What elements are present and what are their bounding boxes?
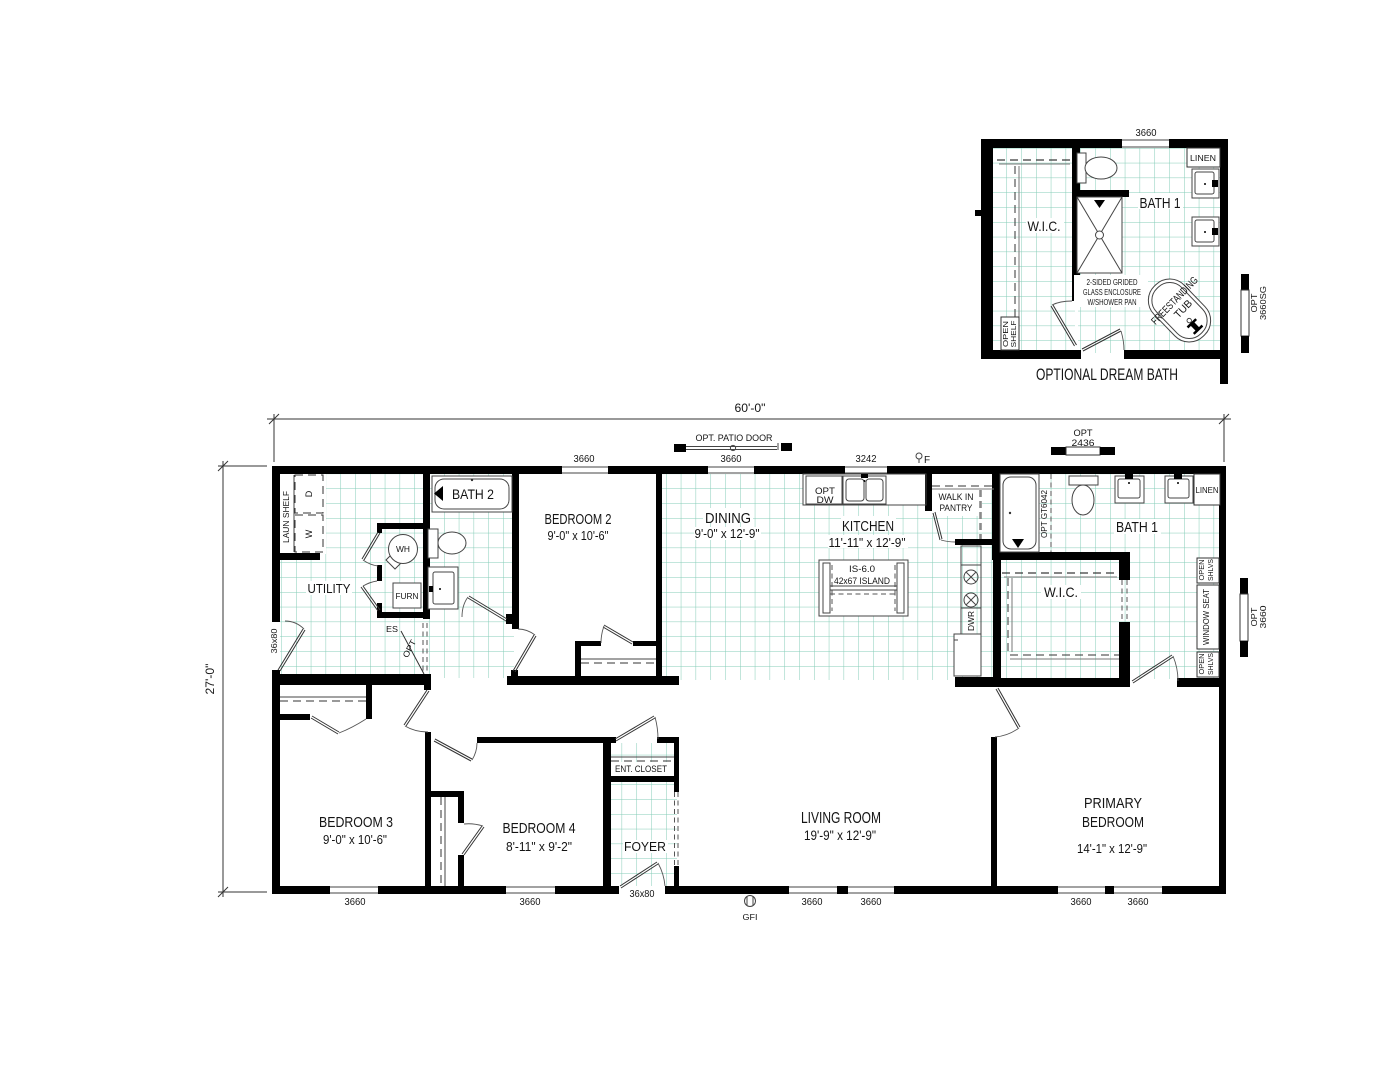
svg-text:3242: 3242 [856, 454, 877, 465]
svg-text:9'-0" x 10'-6": 9'-0" x 10'-6" [323, 832, 387, 847]
svg-text:F: F [924, 455, 930, 466]
svg-text:OPTIONAL DREAM BATH: OPTIONAL DREAM BATH [1036, 365, 1178, 384]
svg-text:OPEN: OPEN [1199, 654, 1206, 675]
svg-text:3660: 3660 [1258, 605, 1268, 628]
svg-text:11'-11" x 12'-9": 11'-11" x 12'-9" [829, 535, 906, 550]
svg-text:36x80: 36x80 [269, 628, 279, 653]
svg-text:IS-6.0: IS-6.0 [849, 564, 875, 575]
svg-text:DINING: DINING [705, 510, 751, 527]
svg-text:19'-9" x 12'-9": 19'-9" x 12'-9" [804, 827, 876, 843]
svg-text:SHLVS: SHLVS [1208, 559, 1215, 581]
svg-text:27'-0": 27'-0" [203, 664, 217, 695]
svg-text:LINEN: LINEN [1190, 153, 1216, 163]
svg-text:BEDROOM 4: BEDROOM 4 [503, 820, 576, 837]
svg-text:3660: 3660 [574, 454, 595, 465]
svg-text:ENT. CLOSET: ENT. CLOSET [615, 764, 667, 774]
svg-text:BATH 1: BATH 1 [1116, 520, 1158, 536]
svg-text:PANTRY: PANTRY [940, 503, 973, 513]
svg-text:LAUN SHELF: LAUN SHELF [281, 491, 291, 543]
svg-text:3660: 3660 [1128, 897, 1149, 908]
svg-text:BEDROOM 2: BEDROOM 2 [545, 511, 612, 528]
svg-text:WINDOW SEAT: WINDOW SEAT [1202, 589, 1211, 645]
svg-text:3660: 3660 [1071, 897, 1092, 908]
svg-text:60'-0": 60'-0" [735, 401, 766, 415]
svg-text:9'-0" x 10'-6": 9'-0" x 10'-6" [548, 528, 609, 543]
svg-text:FOYER: FOYER [624, 839, 666, 854]
svg-text:W.I.C.: W.I.C. [1044, 584, 1078, 600]
svg-text:BATH 2: BATH 2 [452, 487, 494, 502]
svg-text:W.I.C.: W.I.C. [1028, 218, 1061, 234]
svg-text:W/SHOWER PAN: W/SHOWER PAN [1088, 297, 1137, 307]
svg-text:KITCHEN: KITCHEN [842, 518, 894, 535]
svg-text:WH: WH [396, 544, 410, 554]
svg-text:42x67 ISLAND: 42x67 ISLAND [834, 576, 890, 587]
svg-text:D: D [304, 490, 314, 497]
svg-text:3660SG: 3660SG [1258, 286, 1268, 320]
svg-text:DWR: DWR [967, 611, 976, 631]
svg-text:BEDROOM: BEDROOM [1082, 814, 1144, 831]
svg-text:GFI: GFI [743, 912, 758, 922]
svg-text:14'-1" x 12'-9": 14'-1" x 12'-9" [1077, 841, 1147, 856]
svg-text:BEDROOM 3: BEDROOM 3 [319, 814, 393, 831]
svg-text:WALK IN: WALK IN [939, 492, 974, 502]
svg-text:3660: 3660 [1136, 128, 1157, 139]
svg-text:3660: 3660 [345, 897, 366, 908]
svg-text:GLASS ENCLOSURE: GLASS ENCLOSURE [1083, 287, 1141, 297]
svg-text:BATH 1: BATH 1 [1140, 196, 1181, 212]
svg-text:LINEN: LINEN [1196, 486, 1219, 495]
svg-text:OPT. PATIO DOOR: OPT. PATIO DOOR [696, 433, 773, 444]
svg-text:3660: 3660 [520, 897, 541, 908]
svg-text:3660: 3660 [721, 454, 742, 465]
svg-text:SHLVS: SHLVS [1208, 653, 1215, 675]
svg-text:OPT GT6042: OPT GT6042 [1039, 490, 1049, 538]
svg-text:UTILITY: UTILITY [308, 581, 351, 596]
svg-text:W: W [304, 529, 314, 538]
svg-text:9'-0" x 12'-9": 9'-0" x 12'-9" [695, 526, 760, 541]
svg-text:FURN: FURN [396, 591, 419, 601]
svg-text:3660: 3660 [802, 897, 823, 908]
svg-text:DW: DW [817, 495, 835, 505]
svg-text:ES: ES [386, 624, 398, 634]
svg-text:8'-11" x 9'-2": 8'-11" x 9'-2" [506, 839, 572, 854]
svg-text:OPEN: OPEN [1199, 560, 1206, 581]
svg-text:SHELF: SHELF [1009, 320, 1018, 347]
svg-text:LIVING ROOM: LIVING ROOM [801, 810, 881, 827]
svg-text:2-SIDED GRIDED: 2-SIDED GRIDED [1087, 277, 1138, 287]
svg-text:PRIMARY: PRIMARY [1084, 795, 1142, 812]
svg-text:36x80: 36x80 [630, 889, 655, 900]
svg-text:3660: 3660 [861, 897, 882, 908]
